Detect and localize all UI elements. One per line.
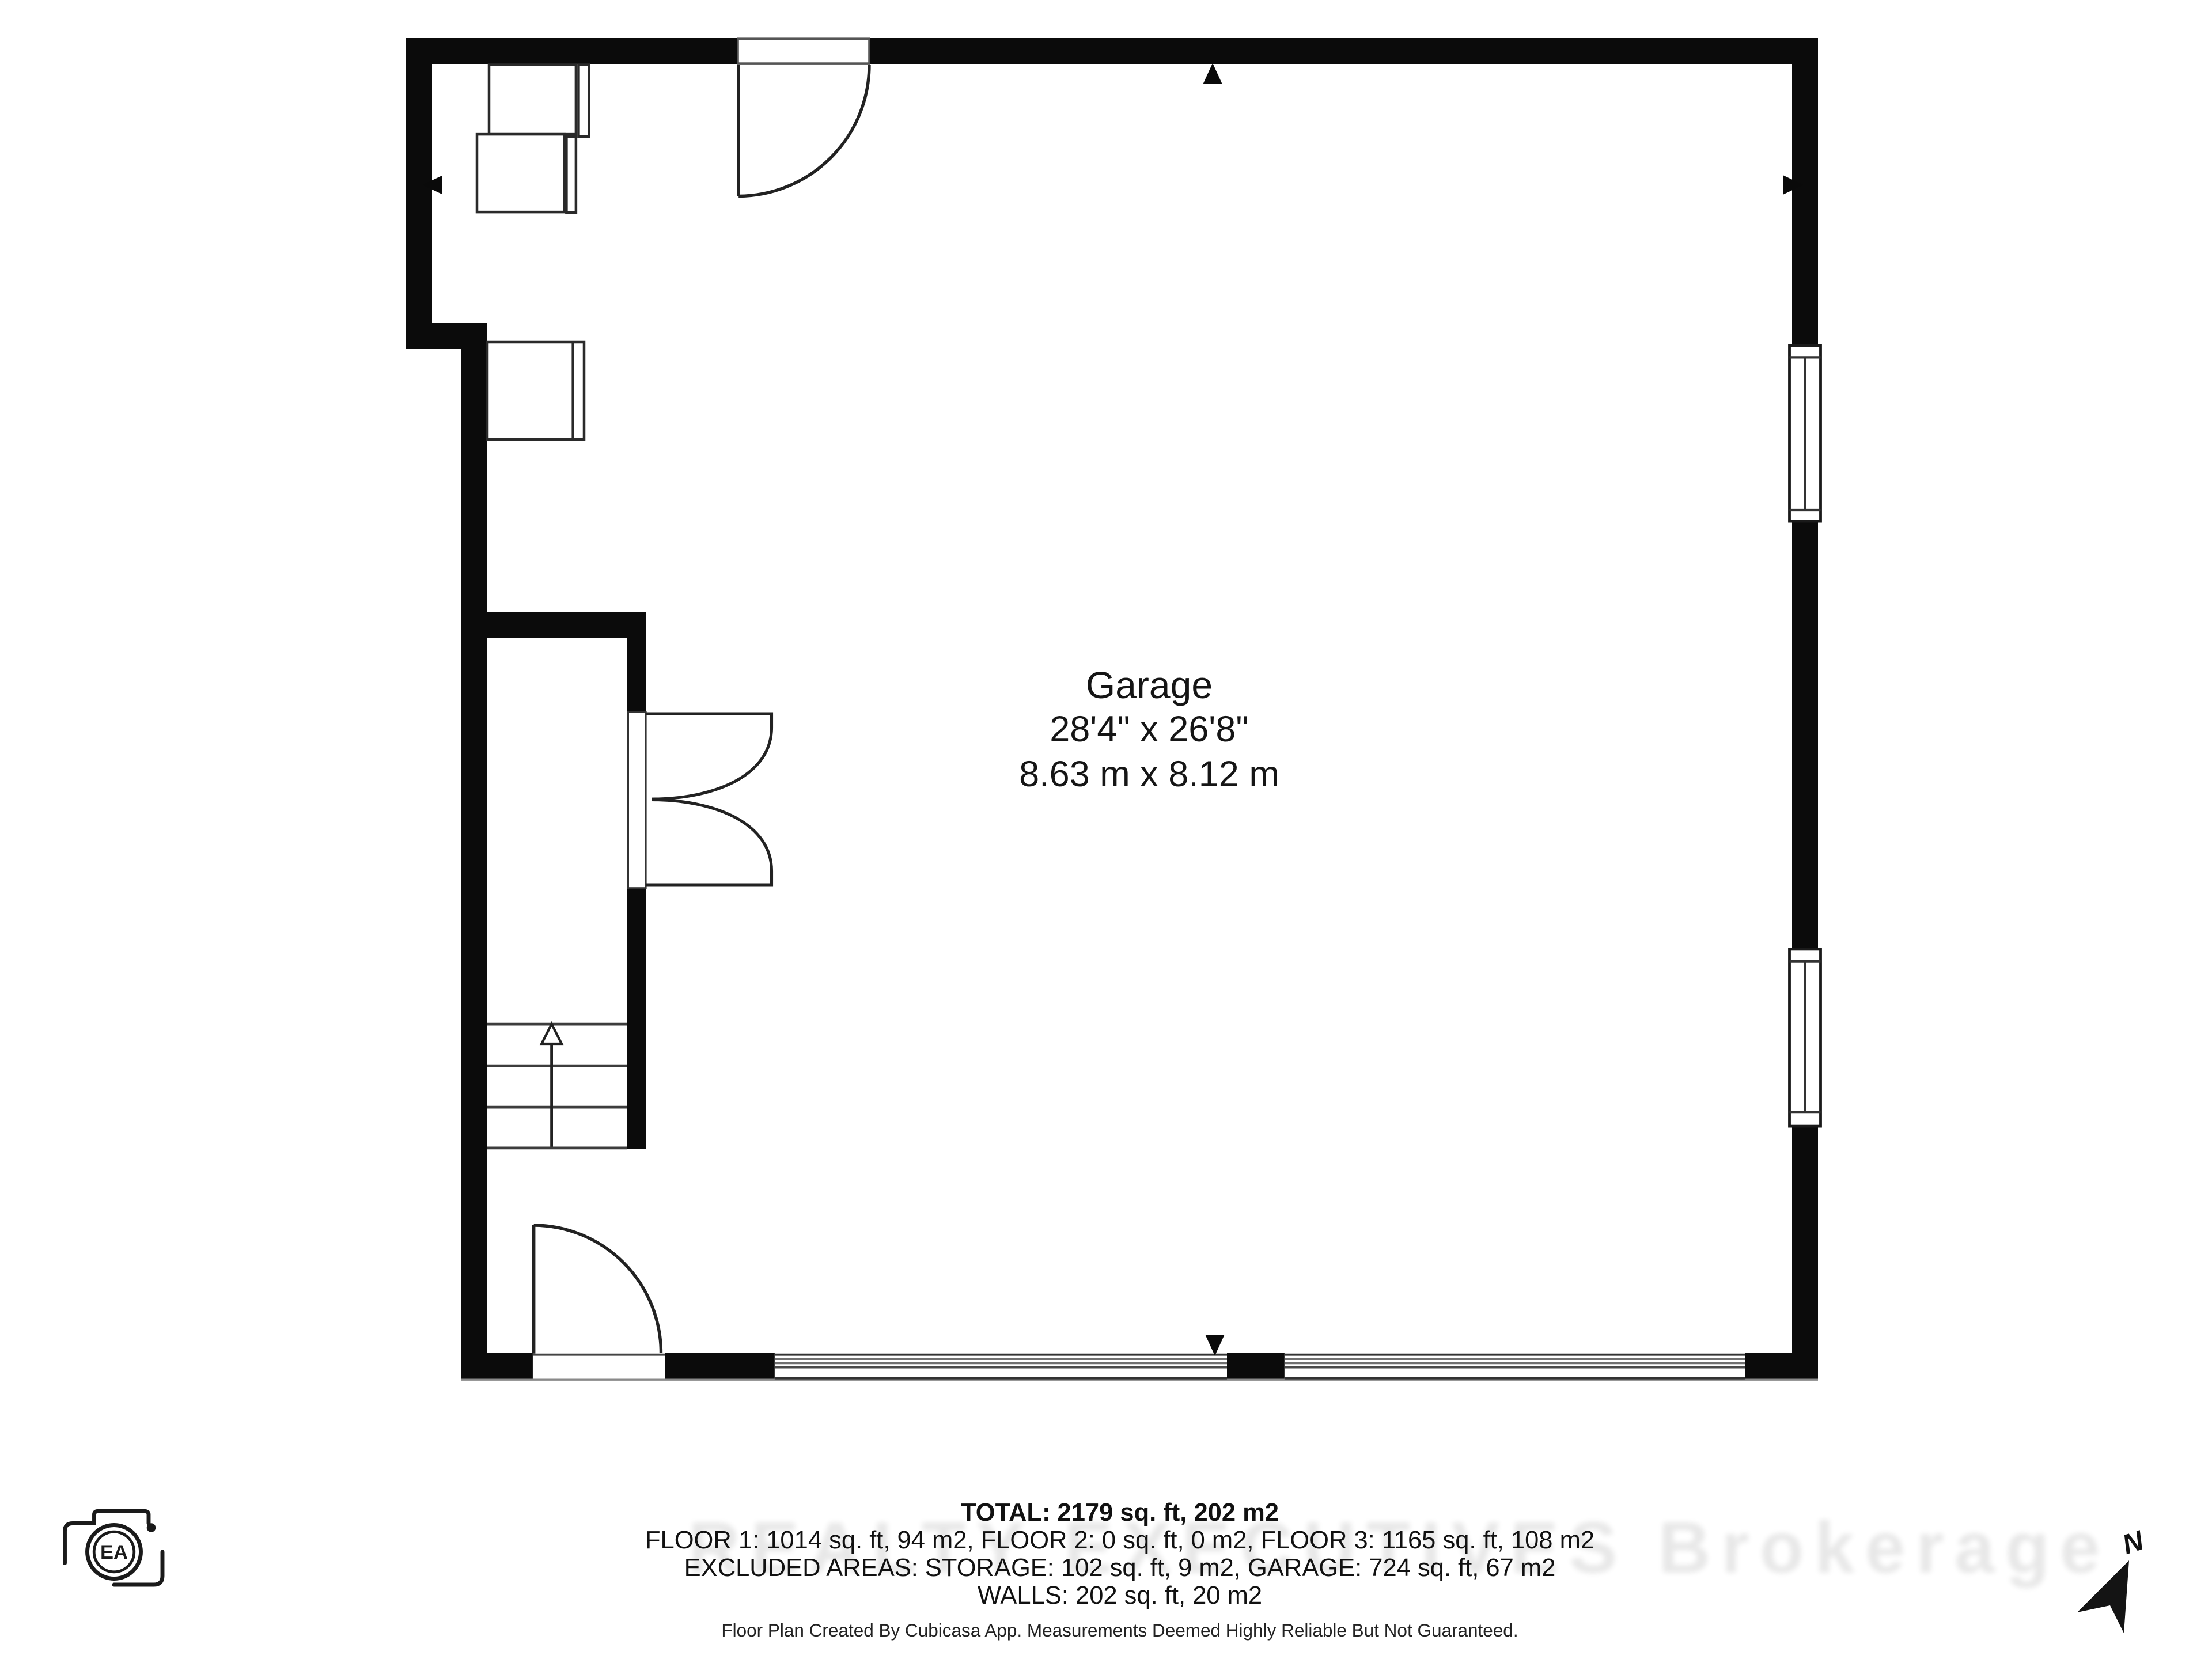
storage-door-panel — [628, 712, 646, 888]
wall-storage-top — [487, 612, 646, 638]
wall-bottom-seg4 — [1745, 1353, 1818, 1379]
storage-double-door — [628, 712, 771, 888]
stair-direction-arrowhead — [541, 1024, 562, 1044]
top-entry-door — [738, 39, 869, 196]
storage-door-swing-upper — [646, 714, 772, 799]
wall-left-lower — [461, 323, 487, 1353]
interior-walls — [487, 612, 646, 1149]
wall-storage-right-upper — [627, 612, 646, 712]
disclaimer-text: Floor Plan Created By Cubicasa App. Meas… — [429, 1621, 1811, 1642]
summary-excluded-areas: EXCLUDED AREAS: STORAGE: 102 sq. ft, 9 m… — [429, 1555, 1811, 1583]
summary-total: TOTAL: 2179 sq. ft, 202 m2 — [429, 1500, 1811, 1528]
wall-bottom-seg3 — [1227, 1353, 1285, 1379]
summary-walls: WALLS: 202 sq. ft, 20 m2 — [429, 1583, 1811, 1611]
north-arrow: N — [2067, 1517, 2153, 1642]
wall-left-upper — [406, 38, 432, 323]
floor-plan-drawing — [0, 0, 2212, 1659]
north-needle-icon — [2077, 1560, 2129, 1633]
wall-bottom-seg1 — [461, 1353, 533, 1379]
marker-bottom-icon — [1206, 1335, 1225, 1356]
wall-right — [1792, 38, 1818, 1379]
camera-logo-icon: EA — [59, 1503, 169, 1593]
fixture-box-b — [477, 134, 565, 212]
storage-door-swing-lower — [646, 800, 772, 885]
bottom-door-swing-arc — [534, 1225, 661, 1353]
fixture-box-a — [489, 65, 576, 135]
summary-floors: FLOOR 1: 1014 sq. ft, 94 m2, FLOOR 2: 0 … — [429, 1528, 1811, 1555]
staircase — [487, 1024, 627, 1148]
garage-door-band-1 — [775, 1354, 1227, 1379]
garage-door-band-2 — [1285, 1354, 1745, 1379]
wall-top-right-segment — [870, 38, 1818, 64]
north-label: N — [2119, 1525, 2148, 1560]
fixture-box-c — [487, 342, 584, 440]
wall-top-left-segment — [406, 38, 737, 64]
marker-top-icon — [1203, 63, 1222, 84]
floor-plan-page: REALTY EXECUTIVES Brokerage Garage 28'4"… — [0, 0, 2212, 1659]
window-1 — [1790, 346, 1821, 521]
top-door-opening — [738, 39, 869, 63]
window-2 — [1790, 949, 1821, 1126]
wall-storage-right-lower — [627, 888, 646, 1149]
fixture-box-b-panel — [566, 137, 576, 213]
room-name: Garage — [804, 664, 1495, 709]
bottom-left-door — [533, 1225, 665, 1355]
top-door-swing-arc — [738, 65, 869, 196]
room-dimensions-metric: 8.63 m x 8.12 m — [804, 753, 1495, 798]
fixtures — [477, 65, 589, 440]
camera-flash-dot — [147, 1523, 156, 1532]
room-label: Garage 28'4" x 26'8" 8.63 m x 8.12 m — [804, 664, 1495, 798]
fixture-box-a-panel — [578, 65, 589, 137]
wall-bottom-seg2 — [665, 1353, 775, 1379]
area-summary: TOTAL: 2179 sq. ft, 202 m2 FLOOR 1: 1014… — [429, 1500, 1811, 1611]
camera-logo-text: EA — [100, 1541, 128, 1563]
room-dimensions-imperial: 28'4" x 26'8" — [804, 709, 1495, 753]
